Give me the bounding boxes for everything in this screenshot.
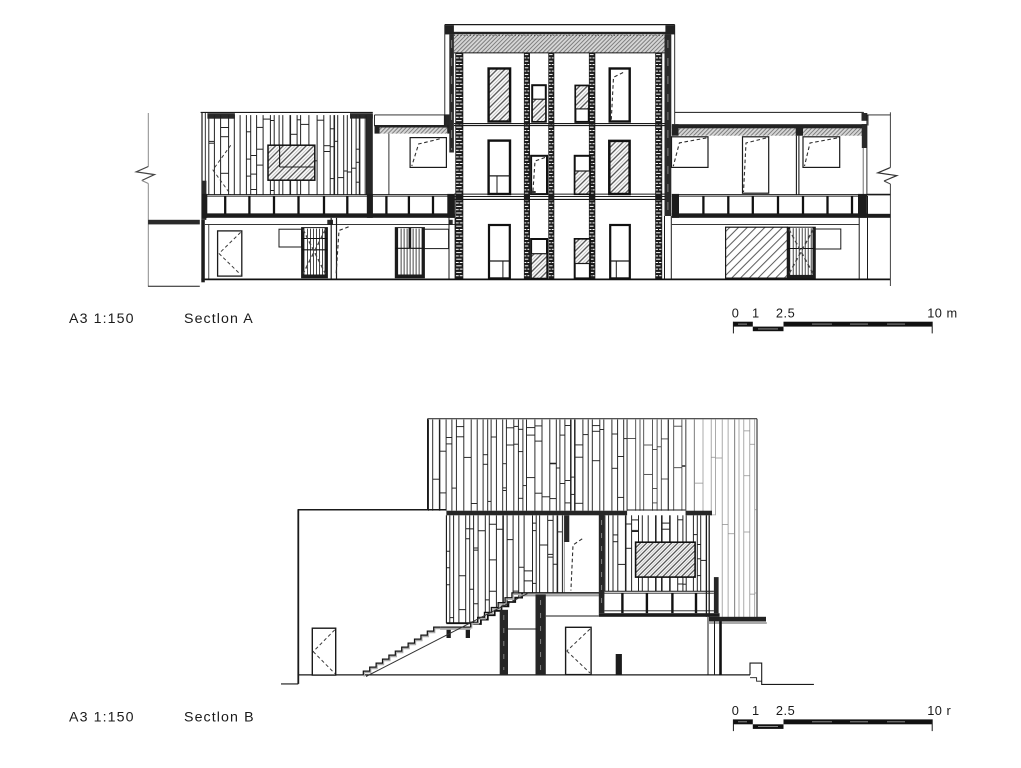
svg-text:0: 0 [732,703,740,718]
svg-text:A3 1:150: A3 1:150 [69,311,135,327]
svg-text:A3 1:150: A3 1:150 [69,709,135,725]
svg-text:1: 1 [752,305,760,320]
svg-text:10 r: 10 r [927,703,951,718]
svg-text:10 m: 10 m [927,305,957,320]
svg-text:Sectlon A: Sectlon A [184,311,254,327]
svg-text:1: 1 [752,703,760,718]
svg-text:2.5: 2.5 [776,305,795,320]
svg-text:2.5: 2.5 [776,703,795,718]
svg-text:0: 0 [732,305,740,320]
svg-text:Sectlon B: Sectlon B [184,709,255,725]
